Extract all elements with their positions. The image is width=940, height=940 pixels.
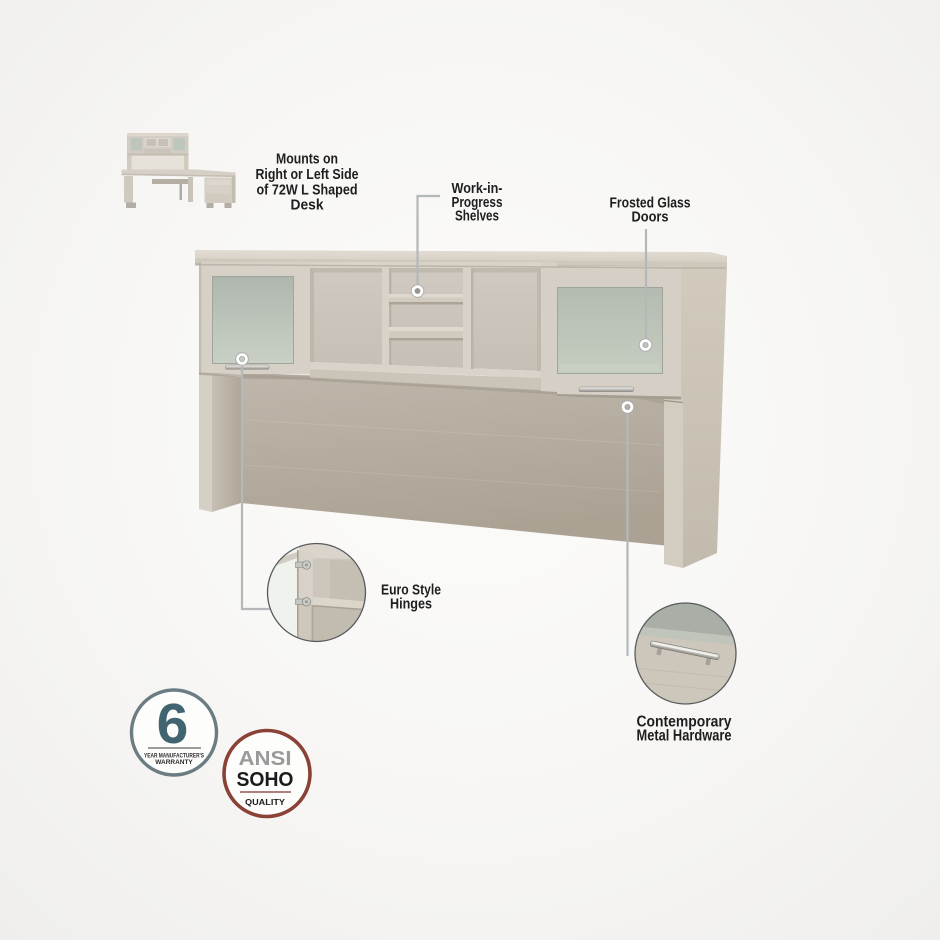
svg-text:QUALITY: QUALITY [245, 797, 285, 807]
svg-text:WARRANTY: WARRANTY [155, 759, 193, 766]
svg-text:ANSI: ANSI [239, 748, 292, 770]
svg-text:SOHO: SOHO [237, 769, 294, 791]
svg-text:Doors: Doors [632, 210, 669, 226]
svg-text:Hinges: Hinges [390, 597, 432, 613]
svg-text:Metal Hardware: Metal Hardware [637, 728, 732, 745]
svg-text:Desk: Desk [291, 198, 325, 214]
svg-text:of 72W L Shaped: of 72W L Shaped [257, 183, 358, 199]
svg-text:6: 6 [157, 692, 189, 756]
svg-text:Shelves: Shelves [455, 209, 499, 225]
svg-text:Right or Left Side: Right or Left Side [256, 167, 359, 183]
svg-text:Mounts on: Mounts on [276, 152, 338, 168]
